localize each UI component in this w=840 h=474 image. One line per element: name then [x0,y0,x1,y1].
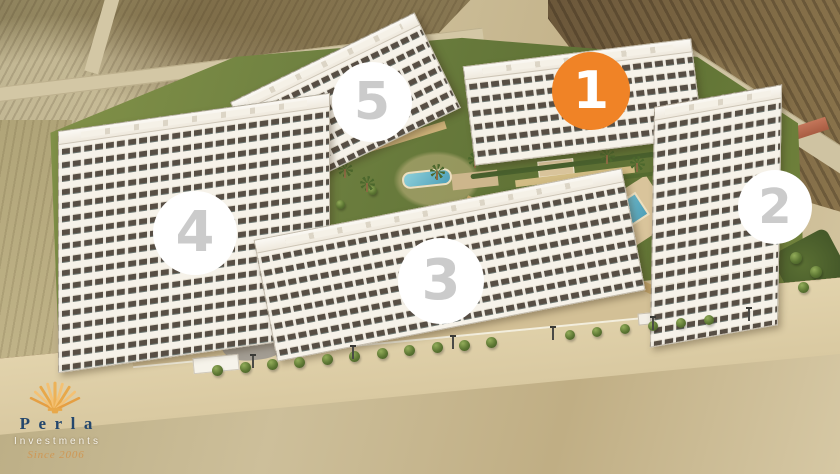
shell-icon [28,376,82,416]
tree [322,354,333,365]
palm-tree [360,176,375,191]
logo-tagline: Since 2006 [0,449,112,461]
palm-tree [630,156,645,171]
marker-building-1[interactable]: 1 [552,52,630,130]
tree [432,342,443,353]
marker-building-2[interactable]: 2 [738,170,812,244]
marker-building-4[interactable]: 4 [153,191,237,275]
tree [790,252,802,264]
tree [620,324,630,334]
street-lamp [652,318,654,330]
tree [704,315,714,325]
palm-tree [600,148,615,163]
tree [592,327,602,337]
tree [565,330,575,340]
tree [267,359,278,370]
tree [798,282,809,293]
logo-subtitle: Investments [0,436,112,447]
aerial-render: 1 2 3 4 5 Perla Investments Since 2006 [0,0,840,474]
logo-brand: Perla [0,414,112,434]
tree [459,340,470,351]
tree [336,200,345,209]
tree [486,337,497,348]
tree [676,318,686,328]
street-lamp [452,337,454,349]
street-lamp [552,328,554,340]
tree [810,266,822,278]
palm-tree [430,164,445,179]
street-lamp [252,356,254,368]
tree [404,345,415,356]
marker-building-3[interactable]: 3 [398,238,484,324]
tree [349,351,360,362]
street-lamp [352,347,354,359]
tree [212,365,223,376]
tree [240,362,251,373]
street-lamp [748,309,750,321]
tree [377,348,388,359]
perla-logo: Perla Investments Since 2006 [0,370,112,470]
tree [294,357,305,368]
marker-building-5[interactable]: 5 [332,62,412,142]
